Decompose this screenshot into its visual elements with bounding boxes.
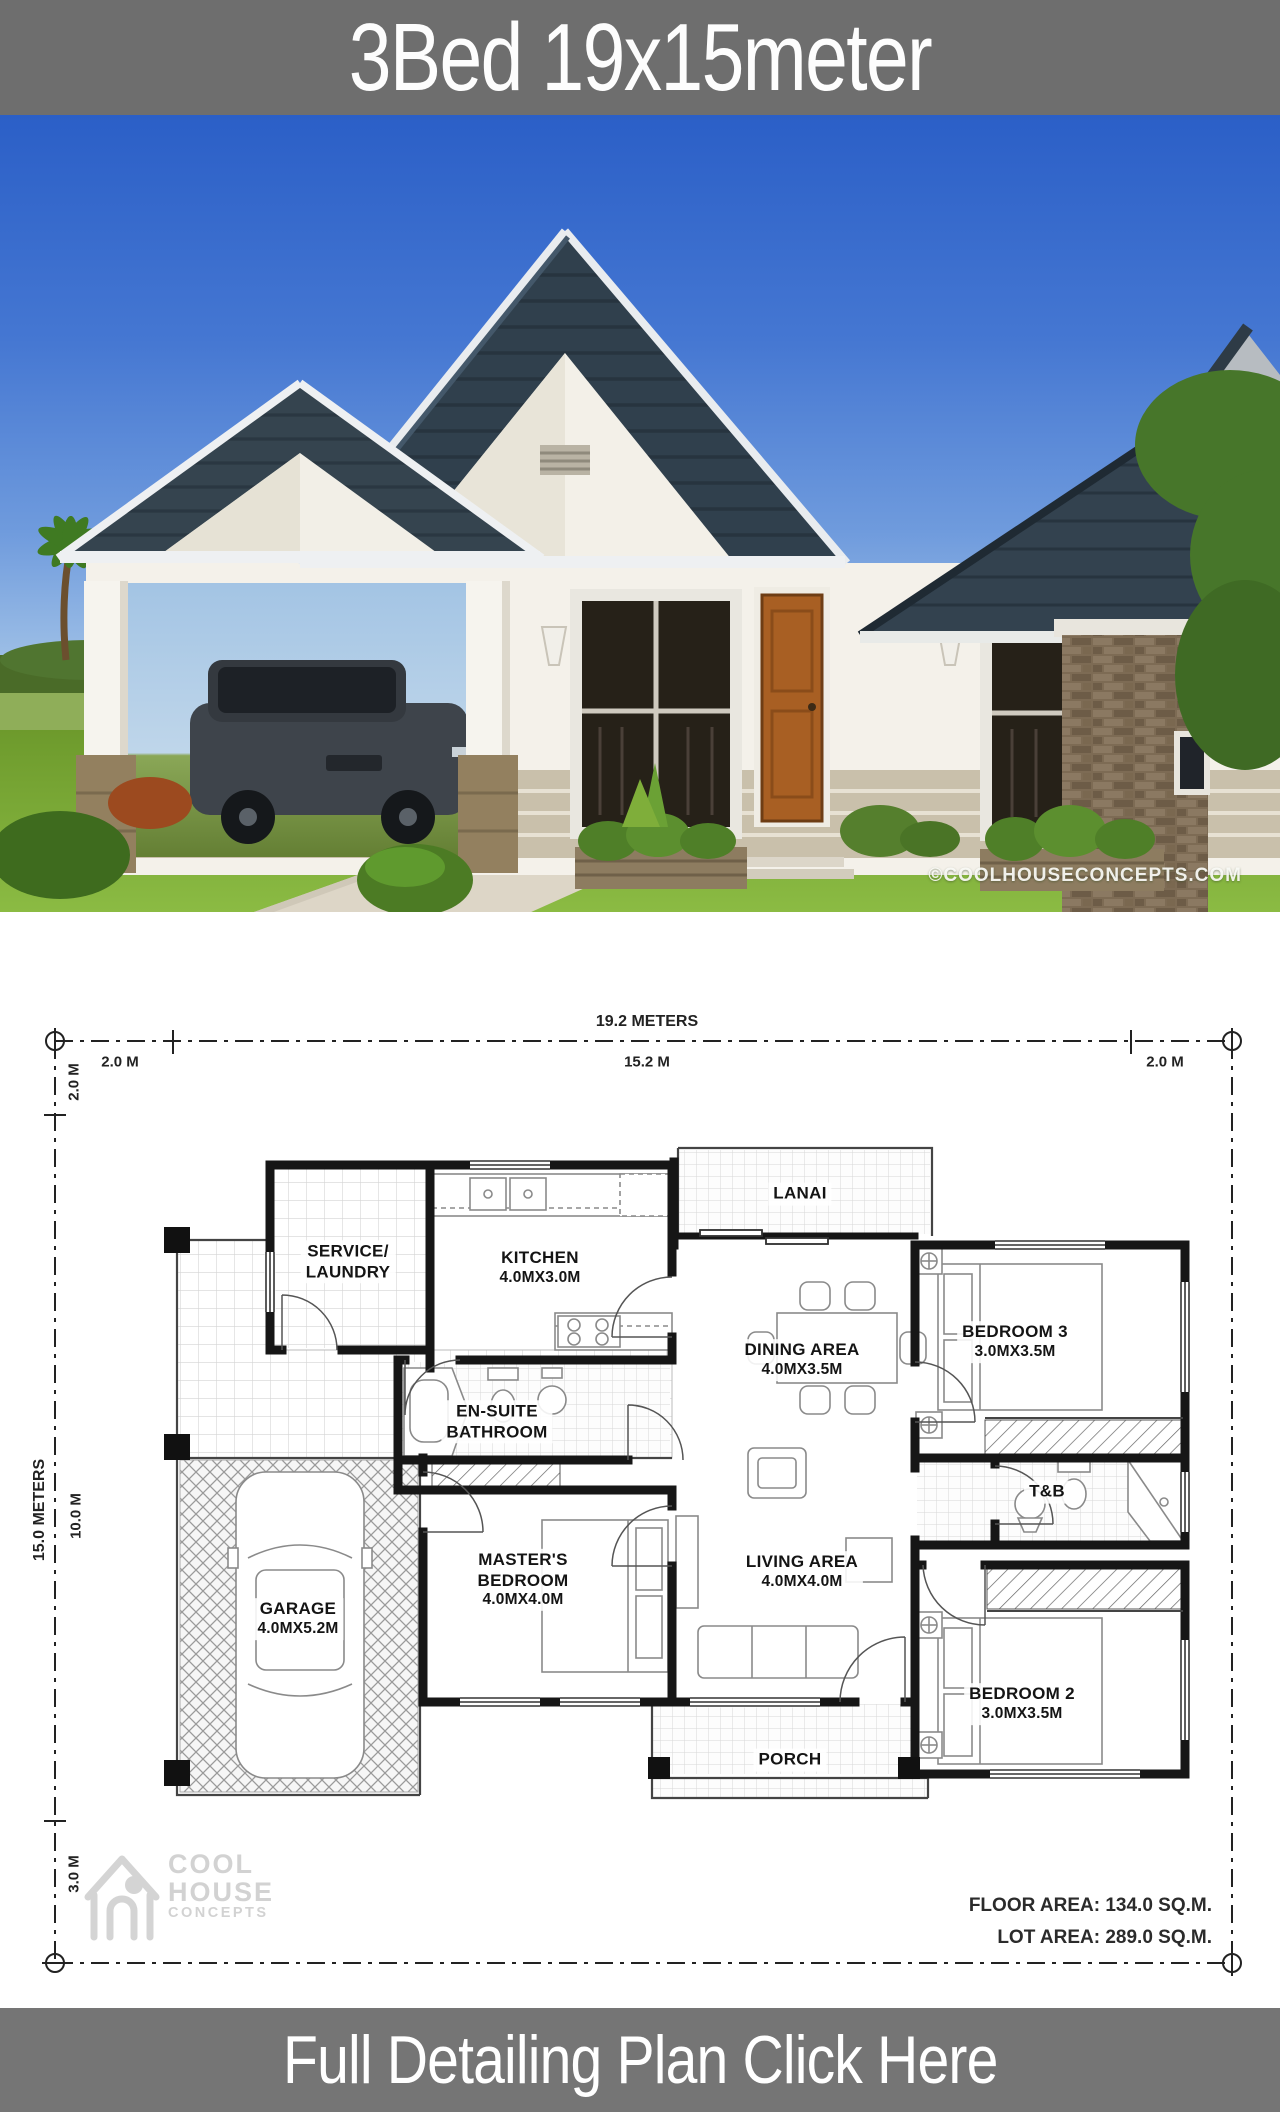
room-label-tb: T&B	[1024, 1481, 1070, 1504]
room-label-garage: GARAGE4.0MX5.2M	[252, 1598, 343, 1640]
room-label-lanai: LANAI	[768, 1183, 831, 1206]
room-label-living: LIVING AREA4.0MX4.0M	[741, 1551, 863, 1593]
logo-line3: CONCEPTS	[168, 1906, 274, 1921]
dim-top-mid: 15.2 M	[624, 1054, 670, 1071]
room-label-bedroom2: BEDROOM 23.0MX3.5M	[964, 1683, 1080, 1725]
room-label-ensuite: EN-SUITE BATHROOM	[441, 1400, 552, 1443]
room-label-kitchen: KITCHEN4.0MX3.0M	[499, 1248, 580, 1288]
cta-banner[interactable]: Full Detailing Plan Click Here	[0, 2008, 1280, 2112]
title-banner: 3Bed 19x15meter	[0, 0, 1280, 115]
room-label-porch: PORCH	[754, 1749, 827, 1772]
house-logo-icon	[80, 1845, 164, 1945]
room-label-bedroom3: BEDROOM 33.0MX3.5M	[957, 1321, 1073, 1363]
house-photo: ©COOLHOUSECONCEPTS.COM	[0, 115, 1280, 917]
dim-total-width: 19.2 METERS	[596, 1013, 698, 1031]
room-label-master: MASTER'S BEDROOM4.0MX4.0M	[473, 1549, 574, 1611]
house-illustration	[0, 115, 1280, 917]
logo-line2: HOUSE	[168, 1879, 274, 1907]
floor-area: FLOOR AREA: 134.0 SQ.M.	[969, 1890, 1212, 1922]
room-label-service: SERVICE/ LAUNDRY	[301, 1240, 396, 1283]
brand-watermark: COOL HOUSE CONCEPTS	[80, 1845, 310, 1960]
dim-top-left: 2.0 M	[101, 1054, 139, 1071]
floor-plan: 19.2 METERS 2.0 M 15.2 M 2.0 M 2.0 M 15.…	[0, 912, 1280, 2008]
cta-text[interactable]: Full Detailing Plan Click Here	[283, 2021, 997, 2099]
dim-top-right: 2.0 M	[1146, 1054, 1184, 1071]
room-label-dining: DINING AREA4.0MX3.5M	[739, 1339, 864, 1381]
dim-left-top: 2.0 M	[66, 1063, 83, 1101]
photo-watermark: ©COOLHOUSECONCEPTS.COM	[928, 865, 1242, 887]
dim-left-mid: 10.0 M	[68, 1493, 85, 1539]
lot-area: LOT AREA: 289.0 SQ.M.	[969, 1922, 1212, 1954]
area-summary: FLOOR AREA: 134.0 SQ.M. LOT AREA: 289.0 …	[969, 1890, 1212, 1954]
page-title: 3Bed 19x15meter	[349, 3, 931, 113]
page: 3Bed 19x15meter	[0, 0, 1280, 2112]
floor-plan-drawing	[0, 912, 1280, 2008]
dim-total-height: 15.0 METERS	[31, 1459, 49, 1561]
logo-line1: COOL	[168, 1851, 274, 1879]
